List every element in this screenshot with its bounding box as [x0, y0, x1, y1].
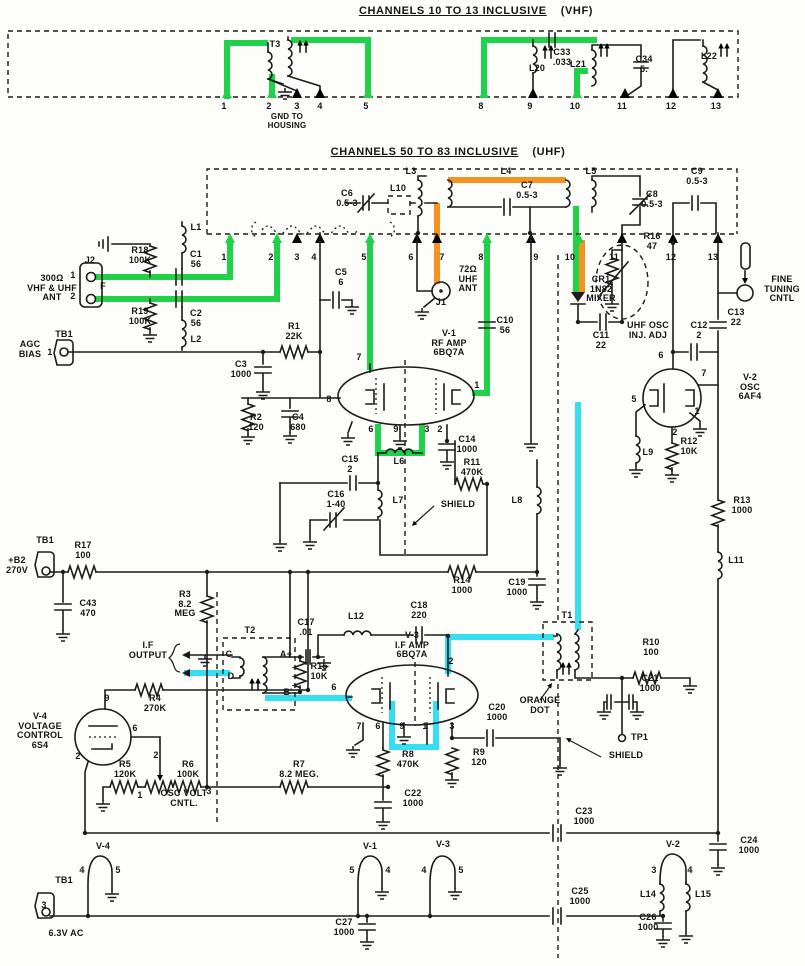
t2-term-c: C	[226, 650, 233, 660]
c43-label: C43 470	[79, 599, 96, 618]
v2-pin: 5	[631, 395, 636, 405]
vhf-terminal: 11	[617, 102, 627, 112]
vhf-section-title: CHANNELS 10 TO 13 INCLUSIVE(VHF)	[359, 6, 593, 18]
c5-label: C5 6	[335, 268, 347, 287]
uhf-terminal: 11	[609, 253, 619, 263]
v4-pin: 9	[104, 694, 109, 704]
heater-pin: 3	[651, 866, 656, 876]
c33-label: C33 .033	[553, 48, 571, 67]
v1-pin: 1	[474, 381, 479, 391]
v1-pin: 9	[393, 425, 398, 435]
if-output-label: I.F OUTPUT	[129, 641, 167, 660]
r14-label: R14 1000	[452, 576, 473, 595]
uhf-terminal: 3	[294, 253, 299, 263]
r15-label: R15 10K	[310, 662, 327, 681]
v4-heater-label: V-4	[96, 842, 110, 852]
c25-label: C25 1000	[570, 887, 591, 906]
r19-label: R19 100K	[129, 307, 151, 326]
l22-label: L22	[701, 52, 717, 62]
schematic-page: CHANNELS 10 TO 13 INCLUSIVE(VHF) CHANNEL…	[0, 0, 805, 966]
l11-label: L11	[728, 556, 744, 566]
tb1-agc-label: TB1	[55, 330, 73, 340]
l14-label: L14	[640, 890, 656, 900]
r10-label: R10 100	[642, 638, 659, 657]
cr1-label: CR1 1N82 MIXER	[586, 275, 616, 304]
r5-label: R5 120K	[114, 760, 136, 779]
t1-output	[540, 630, 697, 742]
v2-pin: 6	[658, 351, 663, 361]
r16-label: R16 47	[643, 232, 660, 251]
c18-label: C18 220	[410, 601, 427, 620]
agc-pin1: 1	[47, 348, 52, 358]
c26-label: C26 1000	[638, 913, 659, 932]
uhf-osc-label: UHF OSC INJ. ADJ	[627, 321, 669, 340]
v4-pin: 6	[132, 724, 137, 734]
ant72-label: 72Ω UHF ANT	[458, 265, 477, 294]
v4-pin: 2	[75, 752, 80, 762]
l7-label: L7	[393, 496, 404, 506]
r1-label: R1 22K	[285, 322, 302, 341]
vhf-terminal: 5	[363, 102, 368, 112]
schematic-artwork	[0, 0, 805, 966]
uhf-terminal: 9	[533, 253, 538, 263]
r12-label: R12 10K	[680, 437, 697, 456]
osc-volt-label: OSC VOLT CNTL.	[161, 789, 208, 808]
l3-label: L3	[406, 167, 417, 177]
r8-label: R8 470K	[397, 750, 419, 769]
v3-pin: 3	[449, 722, 454, 732]
shield1-label: SHIELD	[441, 500, 475, 510]
heater-pin: 4	[421, 866, 426, 876]
v3-label: V-3 I.F AMP 6BQ7A	[395, 631, 429, 660]
l12-label: L12	[348, 612, 364, 622]
r4-label: R4 270K	[144, 694, 166, 713]
r11-label: R11 470K	[461, 458, 483, 477]
c34-label: C34 5.	[635, 55, 652, 74]
tp1-label: TP1	[631, 733, 648, 743]
uhf-terminal: 1	[221, 253, 226, 263]
pot-pin3: 3	[206, 787, 211, 797]
j2-pinf: F	[100, 282, 106, 292]
j2-pin2: 2	[70, 292, 75, 302]
c13-label: C13 22	[727, 308, 744, 327]
vhf-terminal: 8	[478, 102, 483, 112]
uhf-terminal: 5	[361, 253, 366, 263]
r6-label: R6 100K	[177, 760, 199, 779]
l21-label: L21	[570, 60, 586, 70]
c16-label: C16 1-40	[327, 490, 346, 509]
uhf-terminal: 6	[408, 253, 413, 263]
c9-label: C9 0.5-3	[686, 167, 708, 186]
r17-label: R17 100	[74, 541, 91, 560]
fine-tuning-label: FINE TUNING CNTL	[764, 275, 800, 304]
vhf-terminal: 4	[317, 102, 322, 112]
c14-label: C14 1000	[457, 435, 478, 454]
t2-term-a: A+	[280, 650, 292, 660]
uhf-terminal: 8	[478, 253, 483, 263]
heater-pin: 4	[79, 866, 84, 876]
l9-label: L9	[643, 448, 654, 458]
l5-label: L5	[586, 167, 597, 177]
vhf-terminal: 12	[666, 102, 676, 112]
c4-label: C4 680	[290, 413, 306, 432]
c3-label: C3 1000	[231, 360, 252, 379]
uhf-terminal: 10	[565, 253, 575, 263]
l8-label: L8	[512, 496, 523, 506]
v3-pin: 6	[331, 683, 336, 693]
pot-pin1: 1	[137, 791, 142, 801]
tb1-heater-label: TB1	[55, 876, 73, 886]
l10-label: L10	[390, 184, 406, 194]
junction-dots	[61, 231, 720, 918]
green-signal-traces	[95, 40, 597, 453]
c19-label: C19 1000	[507, 578, 528, 597]
trimmer-strip	[252, 222, 395, 237]
l2-label: L2	[191, 335, 202, 345]
r9-label: R9 120	[471, 748, 487, 767]
pot-pin2: 2	[153, 751, 158, 761]
c23-label: C23 1000	[574, 807, 595, 826]
r2-label: R2 120	[248, 413, 264, 432]
c12-label: C12 2	[690, 321, 707, 340]
tb1-b2-label: TB1	[36, 536, 54, 546]
v3-heater-label: V-3	[436, 840, 450, 850]
b2-label: +B2 270V	[6, 556, 28, 575]
v2-pin: 2	[672, 428, 677, 438]
c24-label: C24 1000	[739, 836, 760, 855]
orange-dot-label: ORANGE DOT	[520, 696, 561, 715]
c6-label: C6 0.5-3	[336, 189, 358, 208]
v1-label: V-1 RF AMP 6BQ7A	[431, 329, 466, 358]
shield2-arrow	[569, 740, 601, 757]
l6-label: L6	[394, 457, 405, 467]
t1-label: T1	[562, 611, 573, 621]
v1-heater-label: V-1	[363, 842, 377, 852]
uhf-terminal: 13	[708, 253, 718, 263]
v3-pin: 9	[399, 722, 404, 732]
vhf-terminal: 1	[221, 102, 226, 112]
vhf-terminal: 9	[527, 102, 532, 112]
c1-label: C1 56	[190, 250, 202, 269]
uhf-section-title: CHANNELS 50 TO 83 INCLUSIVE(UHF)	[331, 147, 566, 159]
v3-pin: 1	[422, 722, 427, 732]
t2-term-b: B'	[283, 688, 292, 698]
j2-pin1: 1	[70, 271, 75, 281]
c22-label: C22 1000	[403, 789, 424, 808]
heater-pin: 5	[349, 866, 354, 876]
c27-label: C27 1000	[334, 918, 355, 937]
r7-label: R7 8.2 MEG.	[279, 760, 319, 779]
vhf-terminal: 3	[294, 102, 299, 112]
j2-label: J2	[85, 256, 95, 266]
tb1-pin3: 3	[41, 901, 46, 911]
shield-enclosures	[8, 31, 738, 958]
l4-label: L4	[501, 167, 512, 177]
l20-label: L20	[529, 64, 545, 74]
v2-pin: 7	[701, 369, 706, 379]
uhf-terminal: 4	[311, 253, 316, 263]
agc-bias-label: AGC BIAS	[19, 340, 41, 359]
v2-pin: 1	[694, 407, 699, 417]
vhf-terminal: 10	[570, 102, 580, 112]
v1-pin: 2	[437, 425, 442, 435]
v1-pin: 3	[424, 425, 429, 435]
v1-pin: 8	[326, 395, 331, 405]
l1-label: L1	[191, 223, 202, 233]
c11-label: C11 22	[593, 331, 610, 350]
t2-term-d: D	[228, 672, 235, 682]
shield2-label: SHIELD	[609, 751, 643, 761]
v2-heater-label: V-2	[666, 840, 680, 850]
right-bus	[712, 233, 724, 833]
v3-pin: 2	[448, 657, 453, 667]
v4-label: V-4 VOLTAGE CONTROL 6S4	[17, 712, 63, 751]
r18-label: R18 100K	[129, 246, 151, 265]
t2-label: T2	[245, 626, 256, 636]
v3-pin: 6	[375, 722, 380, 732]
gnd-housing-label: GND TO HOUSING	[268, 113, 307, 130]
l15-label: L15	[695, 890, 711, 900]
uhf-terminal: 7	[439, 253, 444, 263]
heater-pin: 4	[385, 866, 390, 876]
v1-pin: 7	[356, 353, 361, 363]
c20-label: C20 1000	[487, 703, 508, 722]
c15-label: C15 2	[341, 455, 358, 474]
bottom-buses	[35, 825, 726, 949]
heater-pin: 5	[115, 866, 120, 876]
c17-label: C17 .01	[297, 618, 314, 637]
heater-pin: 5	[458, 866, 463, 876]
r3-label: R3 8.2 MEG	[174, 590, 195, 619]
c10-label: C10 56	[496, 316, 513, 335]
c7-label: C7 0.5-3	[516, 181, 538, 200]
uhf-terminal: 12	[666, 253, 676, 263]
c21-label: C21 1000	[640, 674, 661, 693]
v2-label: V-2 OSC 6AF4	[739, 373, 762, 402]
vac-label: 6.3V AC	[48, 929, 83, 939]
t3-label: T3	[270, 40, 281, 50]
shield1-arrow	[414, 506, 434, 524]
j1-label: J1	[436, 298, 446, 308]
vhf-terminal: 2	[266, 102, 271, 112]
uhf-terminal: 2	[268, 253, 273, 263]
v3-pin: 7	[356, 722, 361, 732]
r13-label: R13 1000	[732, 496, 753, 515]
c8-label: C8 0.5-3	[641, 190, 663, 209]
v1-pin: 6	[368, 425, 373, 435]
heater-pin: 4	[687, 866, 692, 876]
c2-label: C2 56	[190, 309, 202, 328]
vhf-terminal: 13	[711, 102, 721, 112]
